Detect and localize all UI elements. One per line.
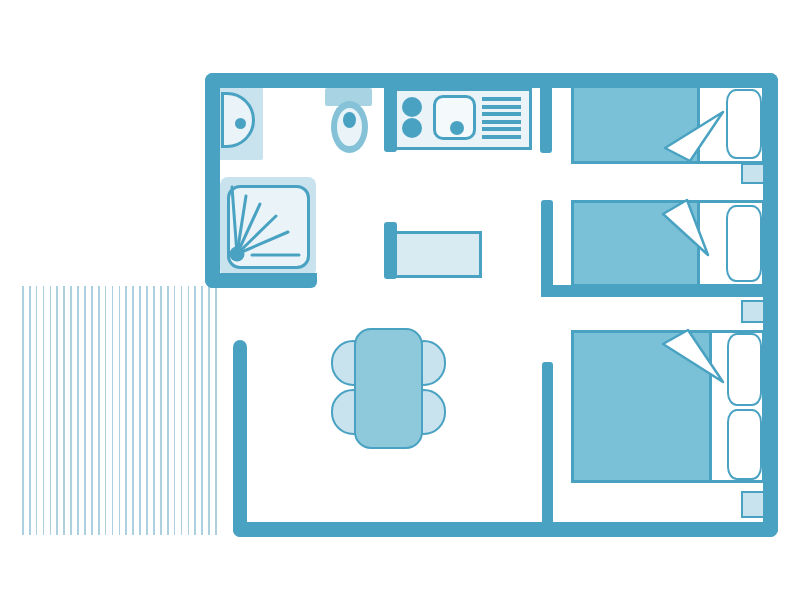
- double-bed-pillow: [727, 409, 762, 480]
- wall-bathroom-right-upper: [384, 80, 397, 152]
- wall-twin-bedroom-lower: [541, 200, 553, 290]
- washbasin-drain-icon: [235, 118, 246, 129]
- single-bed-1-pillow: [726, 89, 762, 159]
- floor-plan: [0, 0, 800, 600]
- wall-double-bedroom-left: [542, 362, 553, 530]
- bedside-table: [741, 300, 765, 323]
- double-bed-blanket: [574, 333, 712, 480]
- bench-unit: [392, 231, 482, 278]
- wall-bathroom-bottom: [205, 273, 317, 288]
- wall-top: [205, 73, 778, 88]
- wall-bathroom-right-lower: [384, 222, 397, 279]
- bedside-table: [741, 163, 765, 184]
- drainer-rack-icon: [482, 97, 521, 139]
- wall-right: [763, 73, 778, 537]
- kitchen-sink-drain-icon: [450, 121, 464, 135]
- single-bed-2-pillow: [726, 205, 762, 282]
- bedside-table: [741, 491, 765, 518]
- dining-chair: [420, 340, 446, 386]
- wall-living-room-left: [233, 340, 247, 537]
- shower-icon: [227, 185, 310, 269]
- single-bed-1-blanket: [574, 88, 700, 161]
- wall-bottom: [233, 522, 778, 537]
- wall-bedroom-divider: [541, 285, 778, 297]
- single-bed-2-blanket: [574, 203, 700, 284]
- terrace-decking: [22, 286, 222, 535]
- wall-twin-bedroom-upper: [540, 80, 552, 153]
- hob-burner-icon: [402, 118, 422, 138]
- dining-table: [354, 328, 423, 449]
- toilet-flush-icon: [343, 112, 356, 128]
- wall-bathroom-left: [205, 73, 220, 288]
- double-bed-pillow: [727, 333, 762, 406]
- dining-chair: [420, 389, 446, 435]
- hob-burner-icon: [402, 97, 422, 117]
